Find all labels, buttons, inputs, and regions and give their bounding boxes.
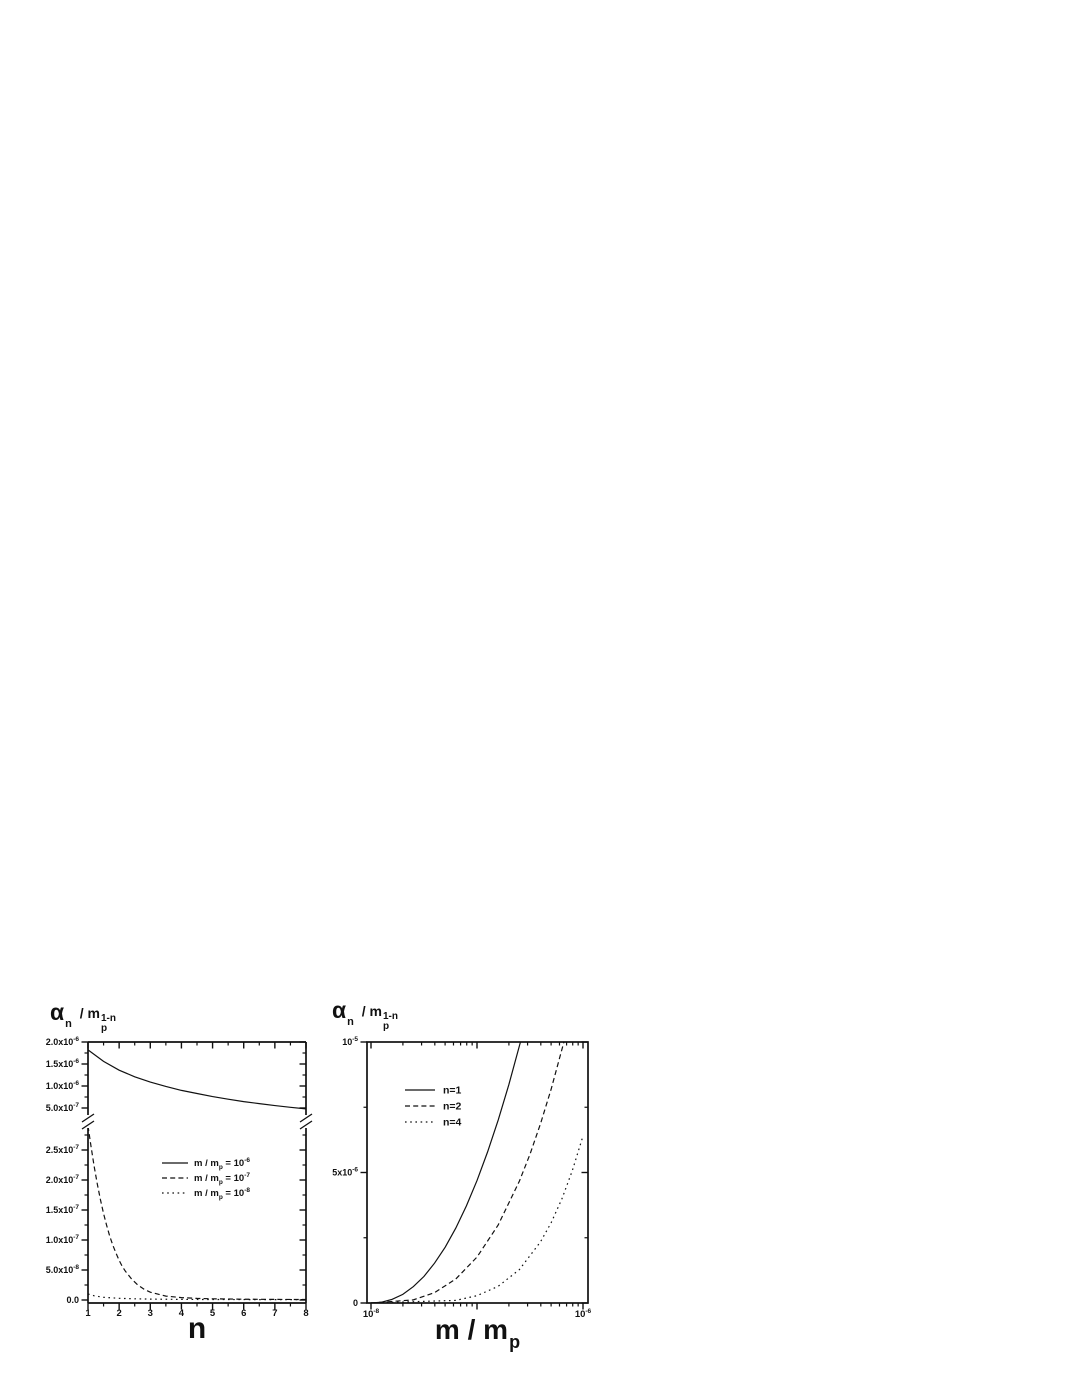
tick-label: 2.0x10-7 — [46, 1174, 80, 1185]
legend-label: m / mp = 10-6 — [194, 1157, 250, 1171]
series-line-solid — [371, 1042, 520, 1303]
tick-label: 5.0x10-8 — [46, 1264, 80, 1275]
left-chart: 123456782.0x10-61.5x10-61.0x10-65.0x10-7… — [40, 985, 330, 1360]
tick-label: 1.0x10-6 — [46, 1080, 80, 1091]
axis-break-mark — [82, 1121, 94, 1129]
tick-label: 5.0x10-7 — [46, 1102, 80, 1113]
legend-label: m / mp = 10-7 — [194, 1172, 250, 1186]
right-chart-series — [371, 1042, 583, 1303]
document-page: αn / m1-np αn / m1-np 123456782.0x10-61.… — [0, 0, 1080, 1397]
series-line-dotted — [371, 1136, 583, 1303]
legend-label: n=2 — [443, 1101, 462, 1113]
right-chart-frame — [367, 1042, 588, 1303]
axis-break-mark — [300, 1114, 312, 1122]
series-line-dashed — [88, 1126, 306, 1300]
x-label-pre: m / m — [435, 1314, 508, 1345]
tick-label: 0 — [353, 1298, 358, 1308]
right-chart-y-axis: 10-55x10-60 — [332, 1036, 588, 1308]
legend-label: n=1 — [443, 1085, 462, 1097]
tick-label: 1.5x10-7 — [46, 1204, 80, 1215]
tick-label: 2.5x10-7 — [46, 1144, 80, 1155]
tick-label: 0.0 — [66, 1295, 79, 1305]
series-line-dashed — [371, 1042, 564, 1303]
right-chart-x-axis-label: m / mp — [367, 1316, 588, 1344]
right-chart-legend: n=1n=2n=4 — [405, 1085, 462, 1129]
left-chart-x-axis-label: n — [88, 1314, 306, 1344]
series-line-solid — [88, 1050, 306, 1109]
tick-label: 10-5 — [342, 1036, 358, 1047]
right-chart: 10-810-610-55x10-60n=1n=2n=4 — [325, 985, 625, 1360]
plot-frame — [367, 1042, 588, 1303]
tick-label: 5x10-6 — [332, 1167, 358, 1178]
tick-label: 1.5x10-6 — [46, 1058, 80, 1069]
legend-label: n=4 — [443, 1117, 462, 1129]
left-chart-y-axis: 2.0x10-61.5x10-61.0x10-65.0x10-72.5x10-7… — [46, 1036, 306, 1305]
tick-label: 1.0x10-7 — [46, 1234, 80, 1245]
legend-label: m / mp = 10-8 — [194, 1187, 250, 1201]
axis-break-mark — [82, 1114, 94, 1122]
left-chart-legend: m / mp = 10-6m / mp = 10-7m / mp = 10-8 — [162, 1157, 250, 1201]
tick-label: 2.0x10-6 — [46, 1036, 80, 1047]
x-label-subscript-p: p — [509, 1332, 520, 1352]
axis-break-mark — [300, 1121, 312, 1129]
